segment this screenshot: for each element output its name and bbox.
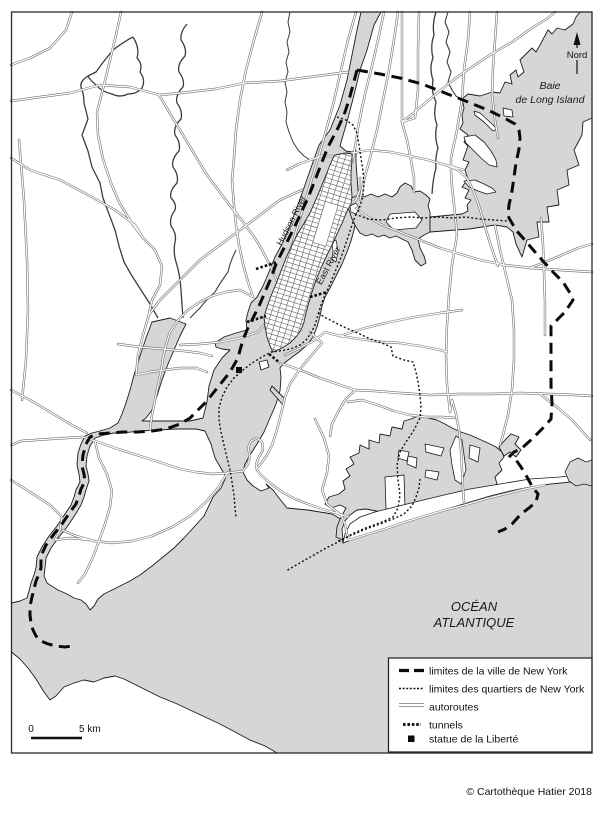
svg-text:5 km: 5 km [79, 724, 101, 735]
svg-text:0: 0 [28, 724, 34, 735]
svg-text:© Cartothèque Hatier 2018: © Cartothèque Hatier 2018 [466, 786, 592, 798]
svg-text:tunnels: tunnels [429, 720, 463, 732]
svg-text:statue de la Liberté: statue de la Liberté [429, 734, 518, 746]
svg-text:ATLANTIQUE: ATLANTIQUE [433, 615, 515, 630]
svg-text:autoroutes: autoroutes [429, 702, 479, 714]
svg-text:OCÉAN: OCÉAN [451, 599, 498, 614]
svg-text:Baie: Baie [539, 80, 560, 92]
svg-text:Nord: Nord [567, 50, 588, 61]
svg-text:limites de la ville de New Yor: limites de la ville de New York [429, 666, 568, 678]
svg-text:limites des quartiers de New Y: limites des quartiers de New York [429, 684, 585, 696]
svg-text:de Long Island: de Long Island [516, 94, 586, 106]
